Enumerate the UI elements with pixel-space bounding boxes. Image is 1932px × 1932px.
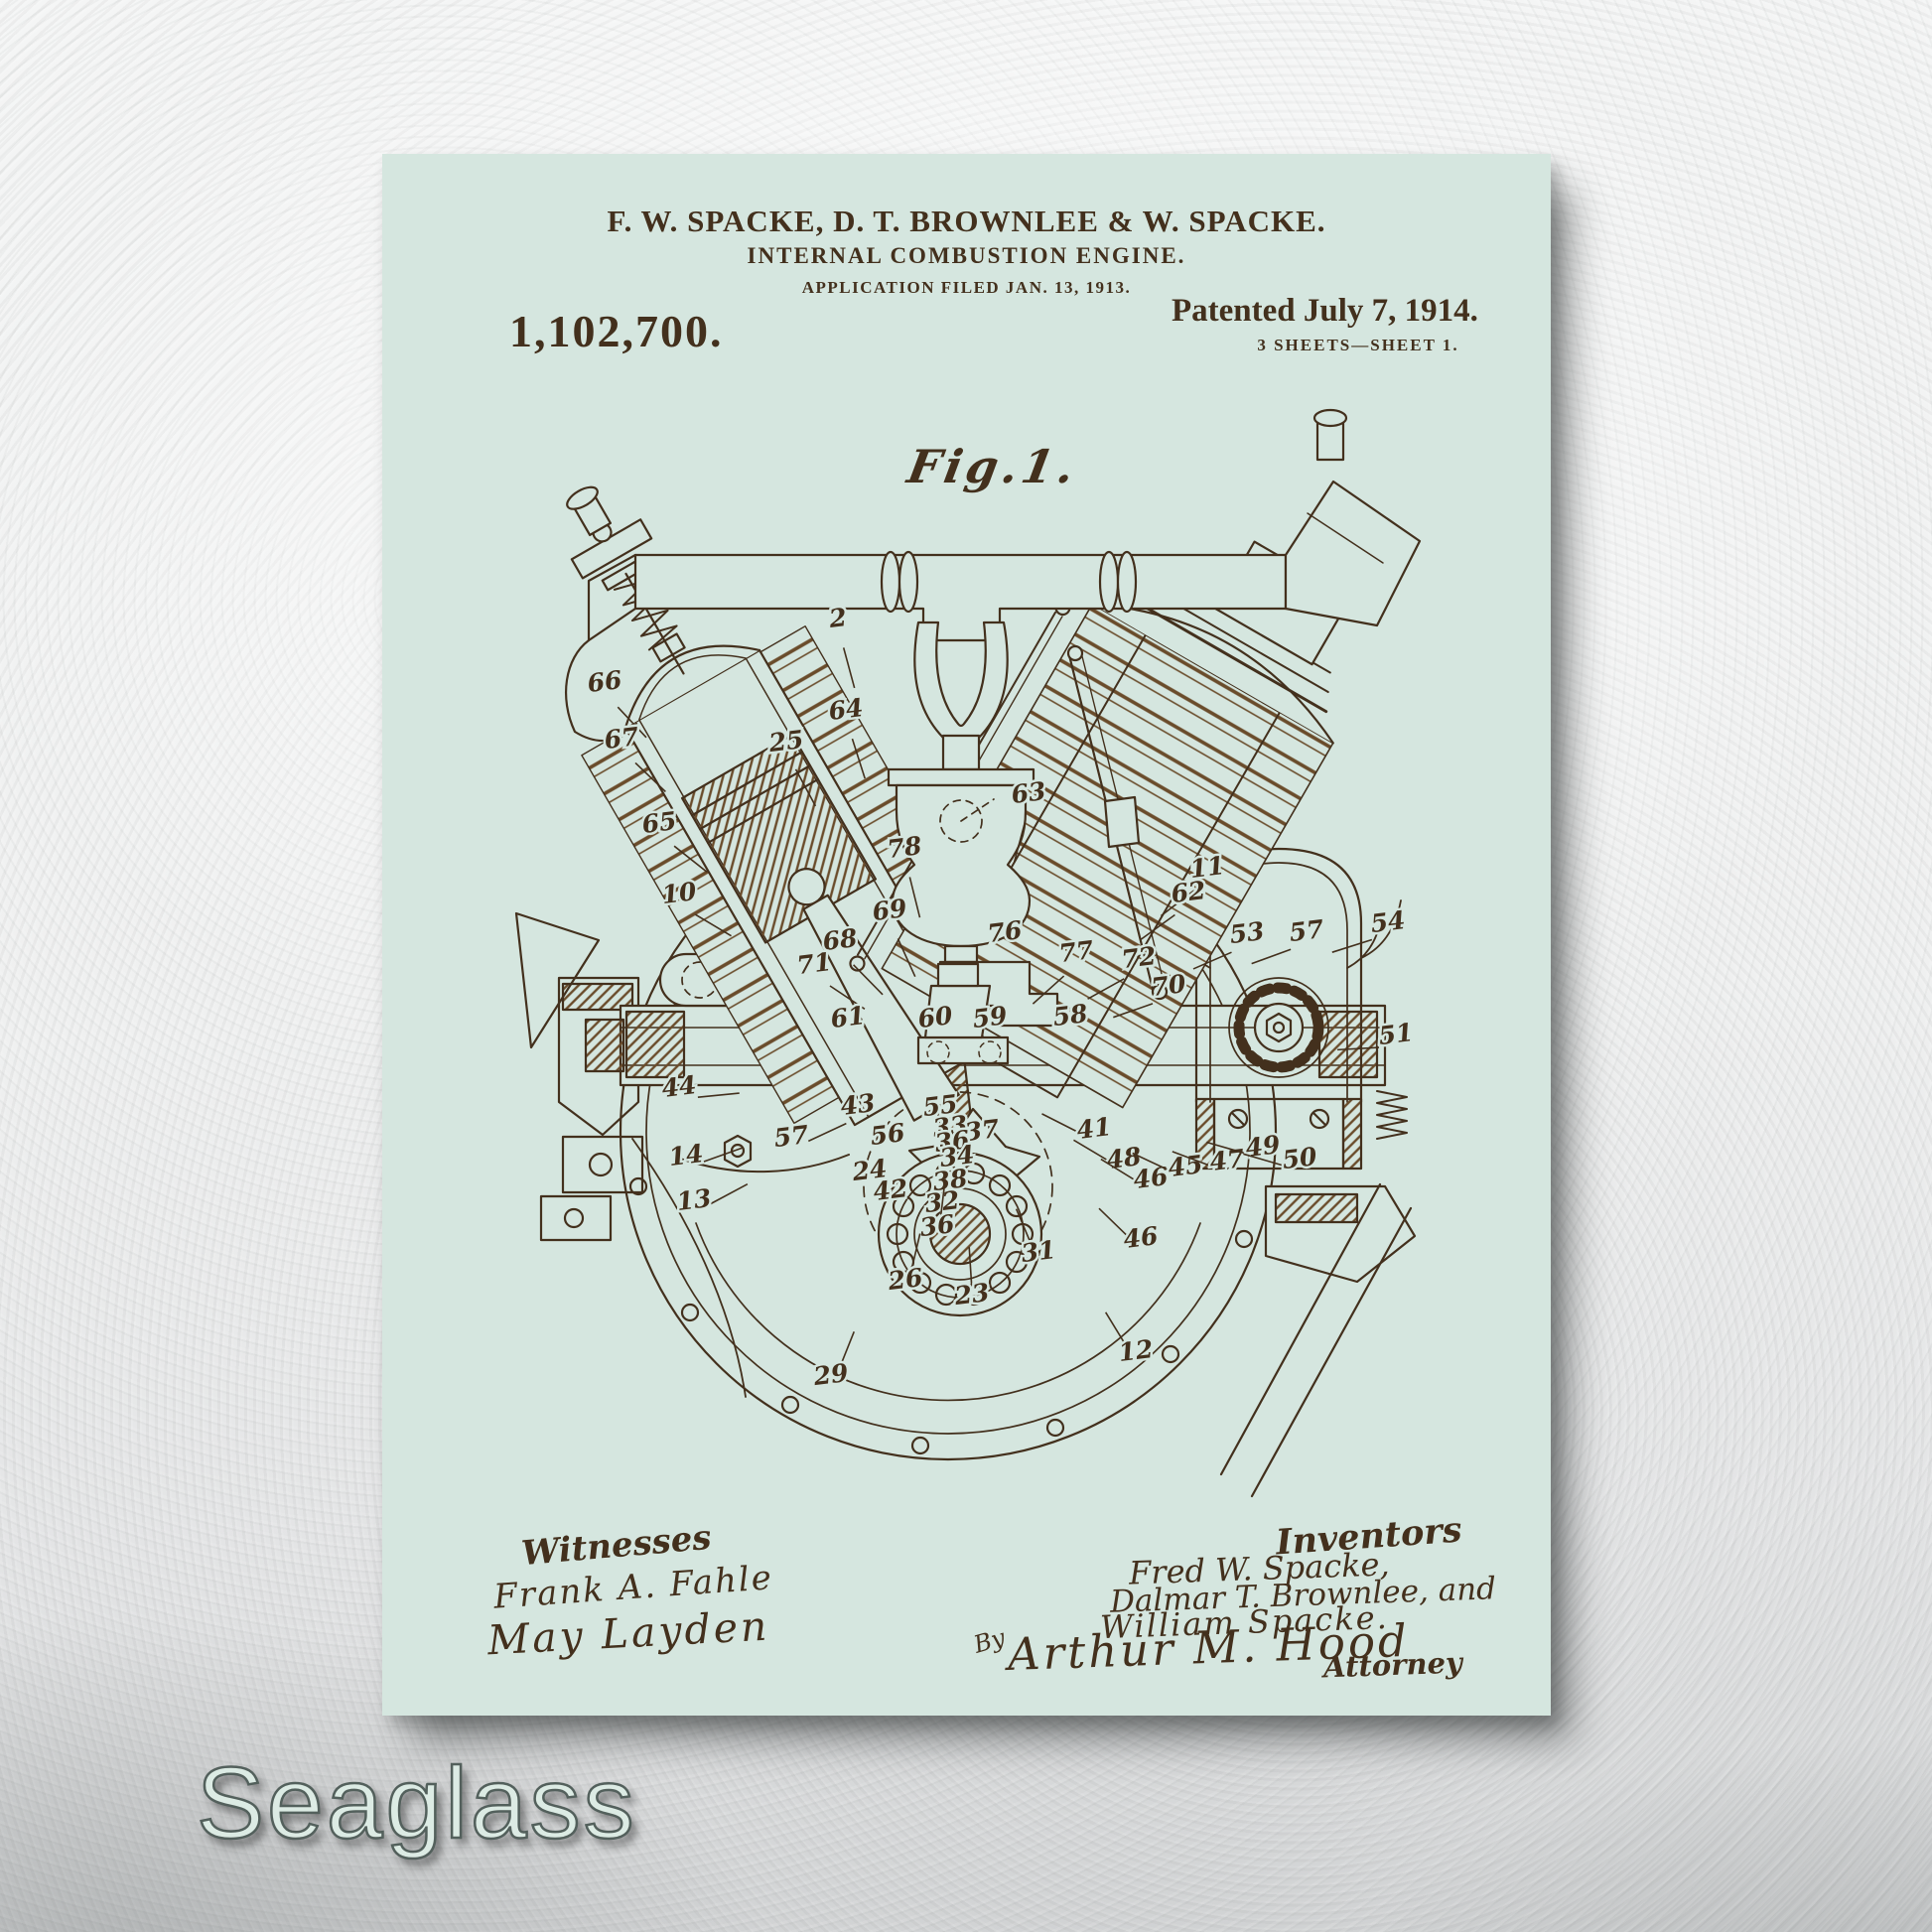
part-label: 65 xyxy=(640,806,678,839)
part-label: 45 xyxy=(1167,1150,1204,1182)
part-label: 44 xyxy=(660,1070,698,1103)
leader-line xyxy=(1252,949,1291,963)
patent-print-poster: F. W. SPACKE, D. T. BROWNLEE & W. SPACKE… xyxy=(382,154,1551,1716)
part-label: 72 xyxy=(1120,941,1158,974)
patent-figure-drawing: 6667652642510786311626968717677727053575… xyxy=(382,154,1551,1716)
part-label: 49 xyxy=(1244,1130,1282,1163)
part-label: 63 xyxy=(1010,776,1047,809)
part-label: 53 xyxy=(1228,916,1266,949)
part-label: 70 xyxy=(1150,969,1188,1002)
seller-watermark: Seaglass xyxy=(197,1745,637,1862)
part-label: 59 xyxy=(971,1001,1009,1034)
part-label: 36 xyxy=(918,1209,956,1242)
part-label: 58 xyxy=(1051,999,1089,1032)
leader-line xyxy=(711,1184,748,1204)
part-label: 10 xyxy=(660,877,699,909)
part-label: 69 xyxy=(871,894,908,926)
part-label: 50 xyxy=(1281,1142,1319,1174)
leader-line xyxy=(1073,1140,1109,1161)
part-label: 64 xyxy=(827,693,865,726)
leader-line xyxy=(1041,1114,1078,1133)
part-label: 56 xyxy=(869,1118,906,1151)
part-label: 54 xyxy=(1369,905,1407,938)
part-label: 41 xyxy=(1075,1112,1113,1145)
part-label: 31 xyxy=(1020,1235,1057,1268)
part-label: 67 xyxy=(603,722,641,755)
part-label: 26 xyxy=(886,1263,924,1296)
leader-line xyxy=(844,647,855,688)
part-label: 77 xyxy=(1057,935,1096,968)
right-mounts xyxy=(1221,1184,1415,1496)
leader-line xyxy=(1332,939,1372,952)
part-label: 76 xyxy=(986,915,1024,948)
part-label: 71 xyxy=(795,947,833,980)
part-label: 23 xyxy=(952,1278,991,1311)
part-label: 43 xyxy=(839,1088,877,1121)
part-label: 25 xyxy=(766,725,805,758)
attorney-title: Attorney xyxy=(1322,1646,1462,1685)
leader-line xyxy=(698,1093,740,1097)
part-label: 42 xyxy=(872,1173,909,1206)
part-label: 57 xyxy=(772,1120,811,1153)
part-label: 14 xyxy=(667,1139,705,1172)
part-label: 29 xyxy=(811,1358,850,1391)
part-label: 2 xyxy=(827,603,849,633)
part-label: 46 xyxy=(1132,1162,1170,1194)
product-photo: F. W. SPACKE, D. T. BROWNLEE & W. SPACKE… xyxy=(0,0,1932,1932)
part-label: 78 xyxy=(886,831,923,864)
part-label: 60 xyxy=(916,1001,955,1034)
leader-line xyxy=(808,1124,846,1142)
part-label: 61 xyxy=(829,1001,867,1034)
part-label: 13 xyxy=(675,1183,713,1216)
part-label: 66 xyxy=(586,665,623,698)
part-label: 62 xyxy=(1170,876,1207,908)
part-label: 46 xyxy=(1122,1221,1160,1254)
part-label: 12 xyxy=(1117,1334,1155,1367)
part-label: 51 xyxy=(1377,1018,1415,1050)
part-label: 57 xyxy=(1288,914,1326,947)
